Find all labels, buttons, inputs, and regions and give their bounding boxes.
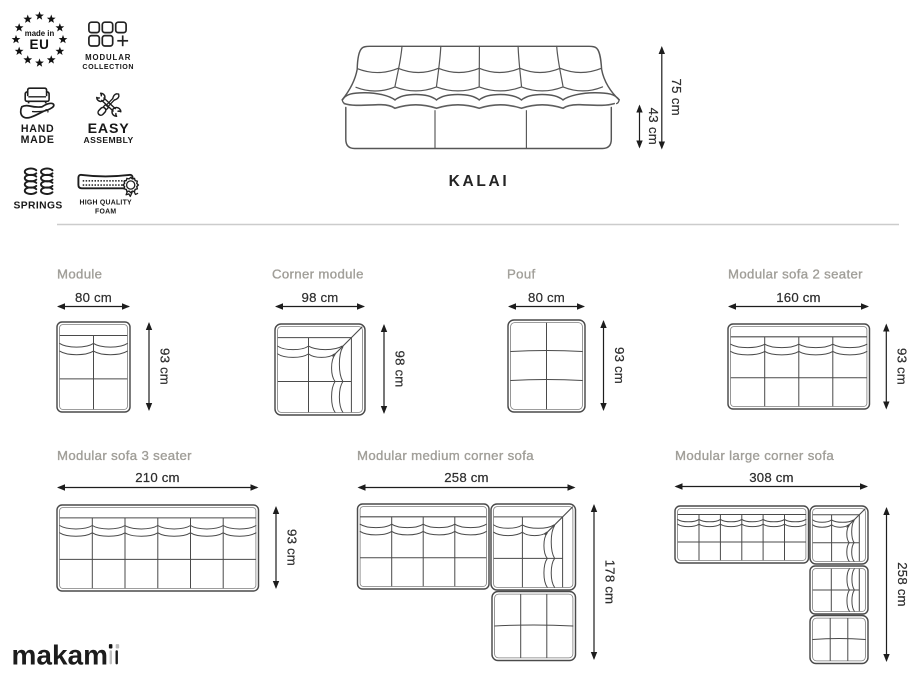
svg-text:Modular medium corner sofa: Modular medium corner sofa [357, 448, 534, 463]
svg-text:Corner module: Corner module [272, 267, 364, 282]
svg-text:80 cm: 80 cm [528, 290, 565, 305]
svg-text:210 cm: 210 cm [135, 470, 179, 485]
svg-text:Modular large corner sofa: Modular large corner sofa [675, 448, 834, 463]
svg-text:MADE: MADE [21, 134, 55, 146]
svg-text:MODULAR: MODULAR [85, 53, 131, 62]
svg-text:EU: EU [30, 37, 50, 52]
svg-text:43 cm: 43 cm [646, 108, 661, 145]
svg-text:93 cm: 93 cm [285, 529, 300, 566]
svg-text:Module: Module [57, 267, 102, 282]
svg-text:makam: makam [12, 639, 109, 670]
svg-text:160 cm: 160 cm [776, 290, 820, 305]
svg-text:308 cm: 308 cm [749, 470, 793, 485]
svg-text:98 cm: 98 cm [302, 290, 339, 305]
svg-text:KALAI: KALAI [449, 173, 510, 190]
svg-text:75 cm: 75 cm [669, 78, 684, 115]
svg-text:93 cm: 93 cm [612, 347, 627, 384]
svg-text:Modular sofa 2 seater: Modular sofa 2 seater [728, 267, 863, 282]
svg-text:HIGH QUALITY: HIGH QUALITY [80, 200, 133, 207]
svg-text:SPRINGS: SPRINGS [14, 201, 63, 212]
svg-text:178 cm: 178 cm [603, 560, 618, 604]
svg-text:COLLECTION: COLLECTION [82, 63, 134, 71]
svg-text:Pouf: Pouf [507, 267, 536, 282]
svg-text:258 cm: 258 cm [895, 562, 910, 606]
svg-text:80 cm: 80 cm [75, 290, 112, 305]
svg-text:FOAM: FOAM [95, 208, 116, 215]
svg-text:ASSEMBLY: ASSEMBLY [84, 135, 134, 145]
svg-text:98 cm: 98 cm [393, 351, 408, 388]
svg-text:93 cm: 93 cm [158, 348, 173, 385]
svg-text:93 cm: 93 cm [895, 348, 910, 385]
svg-text:258 cm: 258 cm [444, 470, 488, 485]
svg-text:Modular sofa 3 seater: Modular sofa 3 seater [57, 448, 192, 463]
